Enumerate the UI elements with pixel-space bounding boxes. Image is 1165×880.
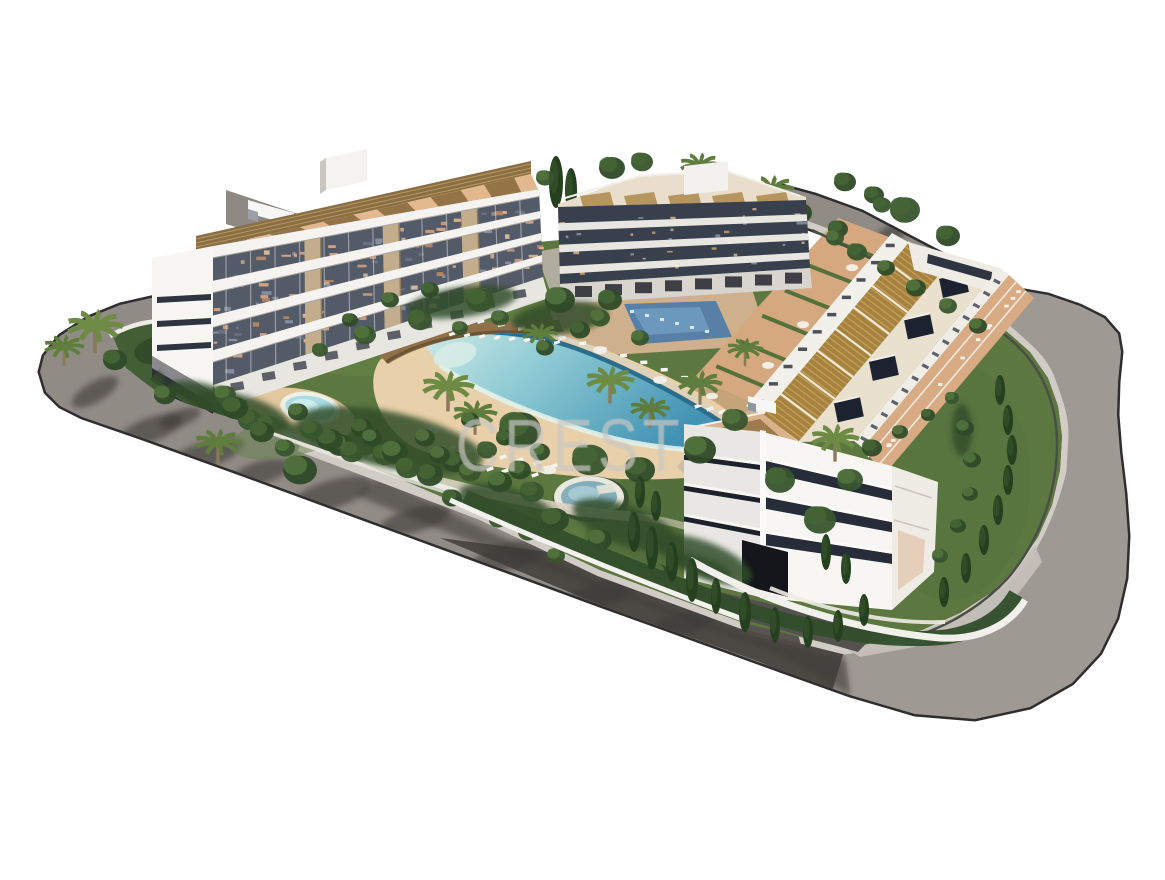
svg-text:CREST: CREST <box>456 406 685 488</box>
